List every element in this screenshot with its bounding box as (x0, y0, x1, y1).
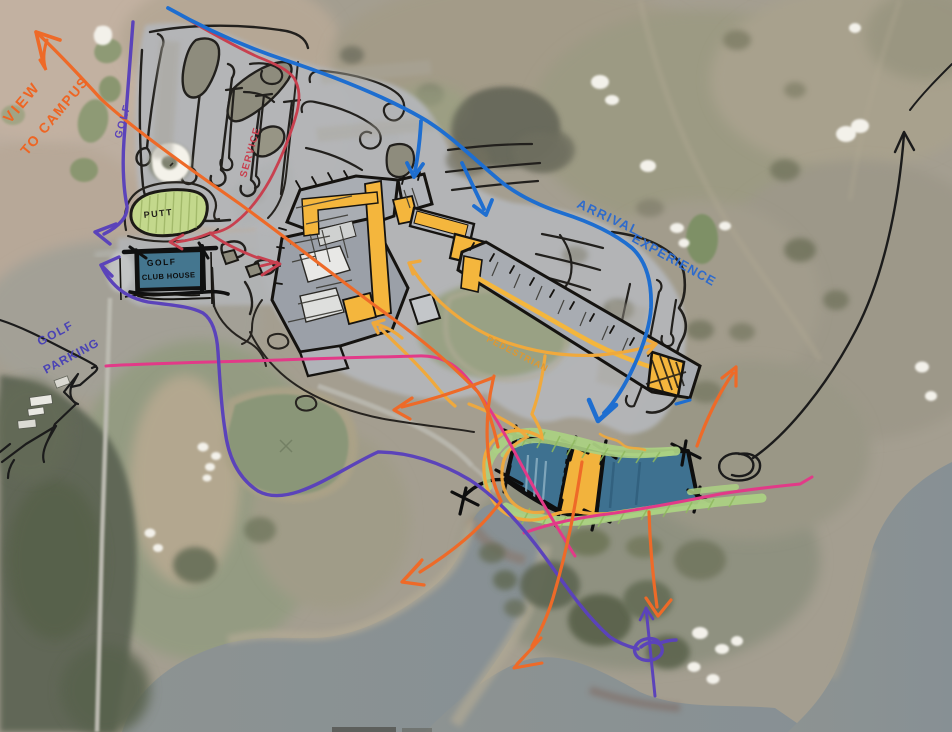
svg-text:GOLF: GOLF (147, 256, 177, 268)
